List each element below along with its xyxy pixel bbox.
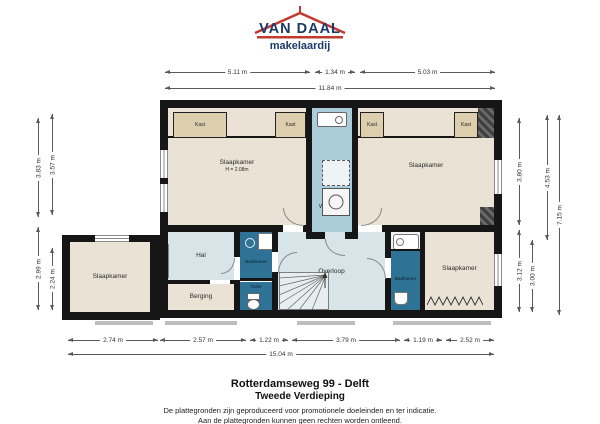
- dim-label: 11.84 m: [315, 85, 344, 92]
- wall-bottom: [160, 310, 502, 318]
- dim-label: 3.79 m: [333, 337, 359, 344]
- closet-kast-4: Kast: [454, 112, 478, 138]
- window-right-2: [494, 254, 502, 286]
- dim-bottom-1: 2.74 m: [68, 340, 158, 341]
- room-label: Slaapkamer: [93, 273, 128, 281]
- dim-bottom-3: 1.22 m: [250, 340, 288, 341]
- dim-top-2: 1.34 m: [315, 72, 355, 73]
- wall-landing-bathr-a: [385, 228, 391, 258]
- dim-right-3: 4.53 m: [547, 115, 548, 240]
- wall-bathl-right-a: [272, 232, 278, 252]
- dim-top-total: 11.84 m: [165, 88, 495, 89]
- floorplan-page: VAN DAAL makelaardij Slaapkamer H = 2.08…: [0, 0, 600, 424]
- dim-left-outer-1: 3.83 m: [38, 118, 39, 217]
- floor-title: Tweede Verdieping: [0, 391, 600, 402]
- dim-label: 2.52 m: [457, 337, 483, 344]
- room-label: Toilet: [250, 285, 261, 291]
- logo-underline: [257, 36, 343, 39]
- dim-right-2: 3.00 m: [532, 240, 533, 312]
- chimney-block-top: [478, 108, 494, 138]
- dim-bottom-2: 2.57 m: [160, 340, 246, 341]
- dim-label: 4.53 m: [545, 165, 552, 191]
- wall-top: [160, 100, 502, 108]
- brand-tagline: makelaardij: [270, 40, 331, 52]
- dim-label: 2.99 m: [36, 256, 43, 282]
- room-label: Hal: [196, 252, 206, 260]
- wall-hall-storage-a: [160, 280, 210, 284]
- disclaimer-line-2: Aan de plattegronden kunnen geen rechten…: [0, 416, 600, 424]
- dim-right-total: 7.15 m: [559, 115, 560, 315]
- room-label: Badkamer: [395, 277, 417, 283]
- closet-kast-1: Kast: [173, 112, 227, 138]
- wall-ext-bottom: [62, 312, 160, 320]
- disclaimer-line-1: De plattegronden zijn geproduceerd voor …: [0, 406, 600, 416]
- dim-label: 2.57 m: [190, 337, 216, 344]
- closet-kast-2: Kast: [275, 112, 306, 138]
- closet-label: Kast: [461, 122, 471, 128]
- washer-dashed-icon: [322, 160, 350, 186]
- dim-label: 3.00 m: [530, 263, 537, 289]
- dim-bottom-5: 1.19 m: [404, 340, 442, 341]
- dim-right-1b: 3.12 m: [519, 230, 520, 312]
- dim-label: 1.34 m: [322, 69, 348, 76]
- washing-machine-icon: [322, 188, 350, 216]
- dim-label: 3.80 m: [517, 159, 524, 185]
- wall-ext-left: [62, 235, 70, 320]
- window-ext-top: [95, 235, 129, 242]
- wall-landing-bathr-b: [385, 278, 391, 312]
- brand-name: VAN DAAL: [259, 21, 341, 37]
- room-label: Berging: [190, 293, 212, 301]
- window-left-2: [160, 184, 168, 212]
- dim-top-3: 5.03 m: [360, 72, 495, 73]
- footer: Rotterdamseweg 99 - Delft Tweede Verdiep…: [0, 378, 600, 424]
- room-label: Slaapkamer: [220, 159, 255, 167]
- closet-label: Kast: [195, 122, 205, 128]
- floorplan: Slaapkamer H = 2.08m Berging/ Wasruimte …: [25, 62, 573, 374]
- room-label: Badkamer: [245, 260, 267, 266]
- dim-right-1a: 3.80 m: [519, 118, 520, 225]
- wall-laundry-tr: [352, 108, 358, 232]
- dim-label: 3.57 m: [50, 152, 57, 178]
- address-title: Rotterdamseweg 99 - Delft: [0, 378, 600, 390]
- room-label: Slaapkamer: [409, 162, 444, 170]
- dim-label: 3.83 m: [36, 155, 43, 181]
- dim-label: 5.11 m: [225, 69, 250, 76]
- wall-bathl-left-a: [234, 232, 240, 257]
- wall-tr-bottom: [382, 225, 494, 232]
- dim-label: 7.15 m: [557, 202, 564, 228]
- wall-bathl-left-b: [234, 280, 240, 312]
- bathtub-icon: [393, 234, 419, 250]
- wall-laundry-bottom-b: [345, 232, 358, 239]
- dim-left-outer-2: 2.99 m: [38, 227, 39, 310]
- dim-label: 15.04 m: [266, 351, 296, 358]
- wall-toilet-top: [240, 278, 272, 281]
- eave-line: [165, 321, 237, 325]
- wall-tl-laundry: [306, 108, 312, 232]
- radiator-icon: [427, 296, 483, 306]
- dim-bottom-6: 2.52 m: [446, 340, 494, 341]
- shower-tray-icon: [258, 233, 273, 250]
- dim-label: 5.03 m: [415, 69, 441, 76]
- closet-label: Kast: [367, 122, 377, 128]
- eave-line: [393, 321, 491, 325]
- window-left-1: [160, 150, 168, 178]
- wall-bath-divider: [391, 249, 420, 251]
- wall-bathl-right-b: [272, 272, 278, 312]
- washbasin-icon: [317, 112, 347, 127]
- dim-label: 2.74 m: [100, 337, 126, 344]
- wall-laundry-bottom-a: [306, 232, 325, 239]
- room-height-note: H = 2.08m: [225, 167, 248, 173]
- brand-logo: VAN DAAL makelaardij: [240, 5, 360, 53]
- dim-label: 1.22 m: [256, 337, 282, 344]
- wall-tl-bottom-b: [303, 225, 308, 232]
- dim-bottom-total: 15.04 m: [68, 354, 494, 355]
- dim-top-1: 5.11 m: [165, 72, 310, 73]
- room-storage: Berging: [168, 284, 234, 310]
- shower-head-icon: [245, 238, 255, 248]
- room-bedroom-bottom-left: Slaapkamer: [70, 242, 150, 312]
- wall-bathr-bedroom: [420, 228, 425, 310]
- dim-label: 3.12 m: [517, 258, 524, 284]
- wall-hall-storage-b: [230, 280, 240, 284]
- room-label: Slaapkamer: [442, 265, 477, 273]
- toilet-bowl-icon: [247, 299, 260, 310]
- closet-kast-3: Kast: [360, 112, 384, 138]
- dim-bottom-4: 3.79 m: [292, 340, 400, 341]
- wall-tl-bottom-a: [160, 225, 283, 232]
- eave-line: [95, 321, 153, 325]
- window-right-1: [494, 160, 502, 194]
- stairs-icon: [279, 272, 329, 310]
- chimney-block-mid: [480, 207, 494, 225]
- sink-icon: [394, 292, 408, 305]
- dim-left-inner-2: 2.24 m: [52, 248, 53, 310]
- eave-line: [297, 321, 355, 325]
- dim-left-inner-1: 3.57 m: [52, 114, 53, 215]
- wall-bl-room-right: [150, 235, 160, 312]
- dim-label: 1.19 m: [410, 337, 436, 344]
- closet-label: Kast: [285, 122, 295, 128]
- dim-label: 2.24 m: [50, 266, 57, 292]
